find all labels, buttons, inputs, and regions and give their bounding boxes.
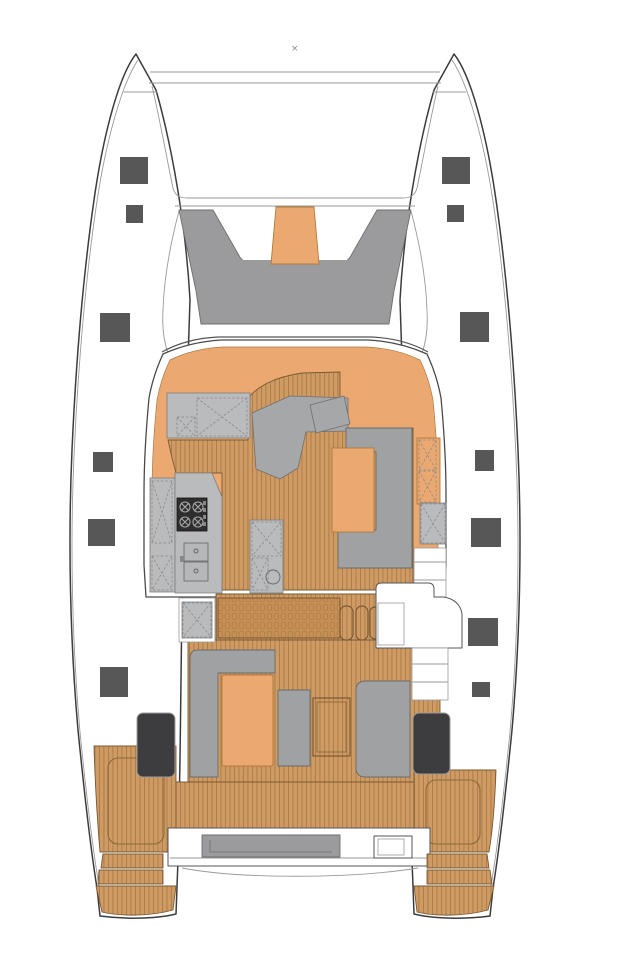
hull-hatch — [442, 157, 470, 184]
galley-counter-forward — [167, 393, 250, 438]
liferaft-locker — [202, 835, 340, 857]
trampoline-net-outline — [152, 86, 438, 198]
foredeck-lounge — [163, 207, 428, 353]
galley-counter-outboard — [150, 478, 175, 592]
hull-hatch — [475, 450, 494, 471]
hull-hatch — [472, 682, 490, 697]
wood-module — [313, 698, 350, 756]
hull-hatch — [126, 205, 143, 223]
stove — [177, 498, 207, 531]
stove-knob — [203, 501, 206, 505]
salon — [144, 340, 446, 597]
cockpit-bench — [278, 690, 310, 766]
aft-salon-bench — [218, 598, 340, 638]
sink-basin — [184, 543, 208, 561]
galley-island — [250, 520, 283, 593]
center-marker: × — [291, 44, 299, 54]
aft-facing-seat — [356, 681, 410, 777]
aft-deck-center — [176, 782, 414, 830]
transom-step — [101, 854, 163, 868]
hull-hatch — [468, 618, 498, 646]
swim-platform-starboard — [414, 886, 494, 915]
hull-hatch — [120, 157, 148, 184]
hull-hatch — [88, 519, 115, 546]
faucet — [180, 556, 184, 562]
helm-seat-base — [378, 603, 404, 645]
cushion — [340, 606, 353, 640]
sink-basin — [184, 562, 208, 581]
stove-knob — [203, 522, 206, 526]
cockpit-table — [222, 675, 273, 766]
bench-cushions — [340, 606, 381, 640]
swim-platform-port — [96, 886, 176, 915]
bow-walkway — [271, 207, 319, 264]
hull-hatch — [447, 205, 464, 222]
aft-crossbeam-curve — [182, 868, 418, 876]
helm-seat-starboard — [413, 713, 450, 774]
side-boarding-steps — [412, 648, 448, 700]
catamaran-deck-plan: × — [0, 0, 636, 958]
stove-knob — [203, 515, 206, 519]
stove-knob — [203, 508, 206, 512]
cockpit-wood-module — [313, 698, 350, 756]
transom-hatch — [374, 836, 412, 858]
hull-hatch — [460, 312, 489, 342]
transom-step — [98, 870, 163, 884]
dinette-table — [332, 448, 374, 532]
helm-seat-port — [137, 713, 175, 777]
transom-step — [427, 870, 492, 884]
transom-step — [427, 854, 489, 868]
hull-hatch — [100, 667, 128, 697]
hull-hatch — [471, 518, 501, 547]
deck-plan-canvas: × — [0, 0, 636, 958]
galley-sink — [180, 543, 208, 581]
transom-hatch-inner — [378, 839, 404, 855]
hull-hatch — [93, 452, 113, 472]
cushion — [356, 606, 368, 640]
hull-hatch — [100, 313, 130, 342]
